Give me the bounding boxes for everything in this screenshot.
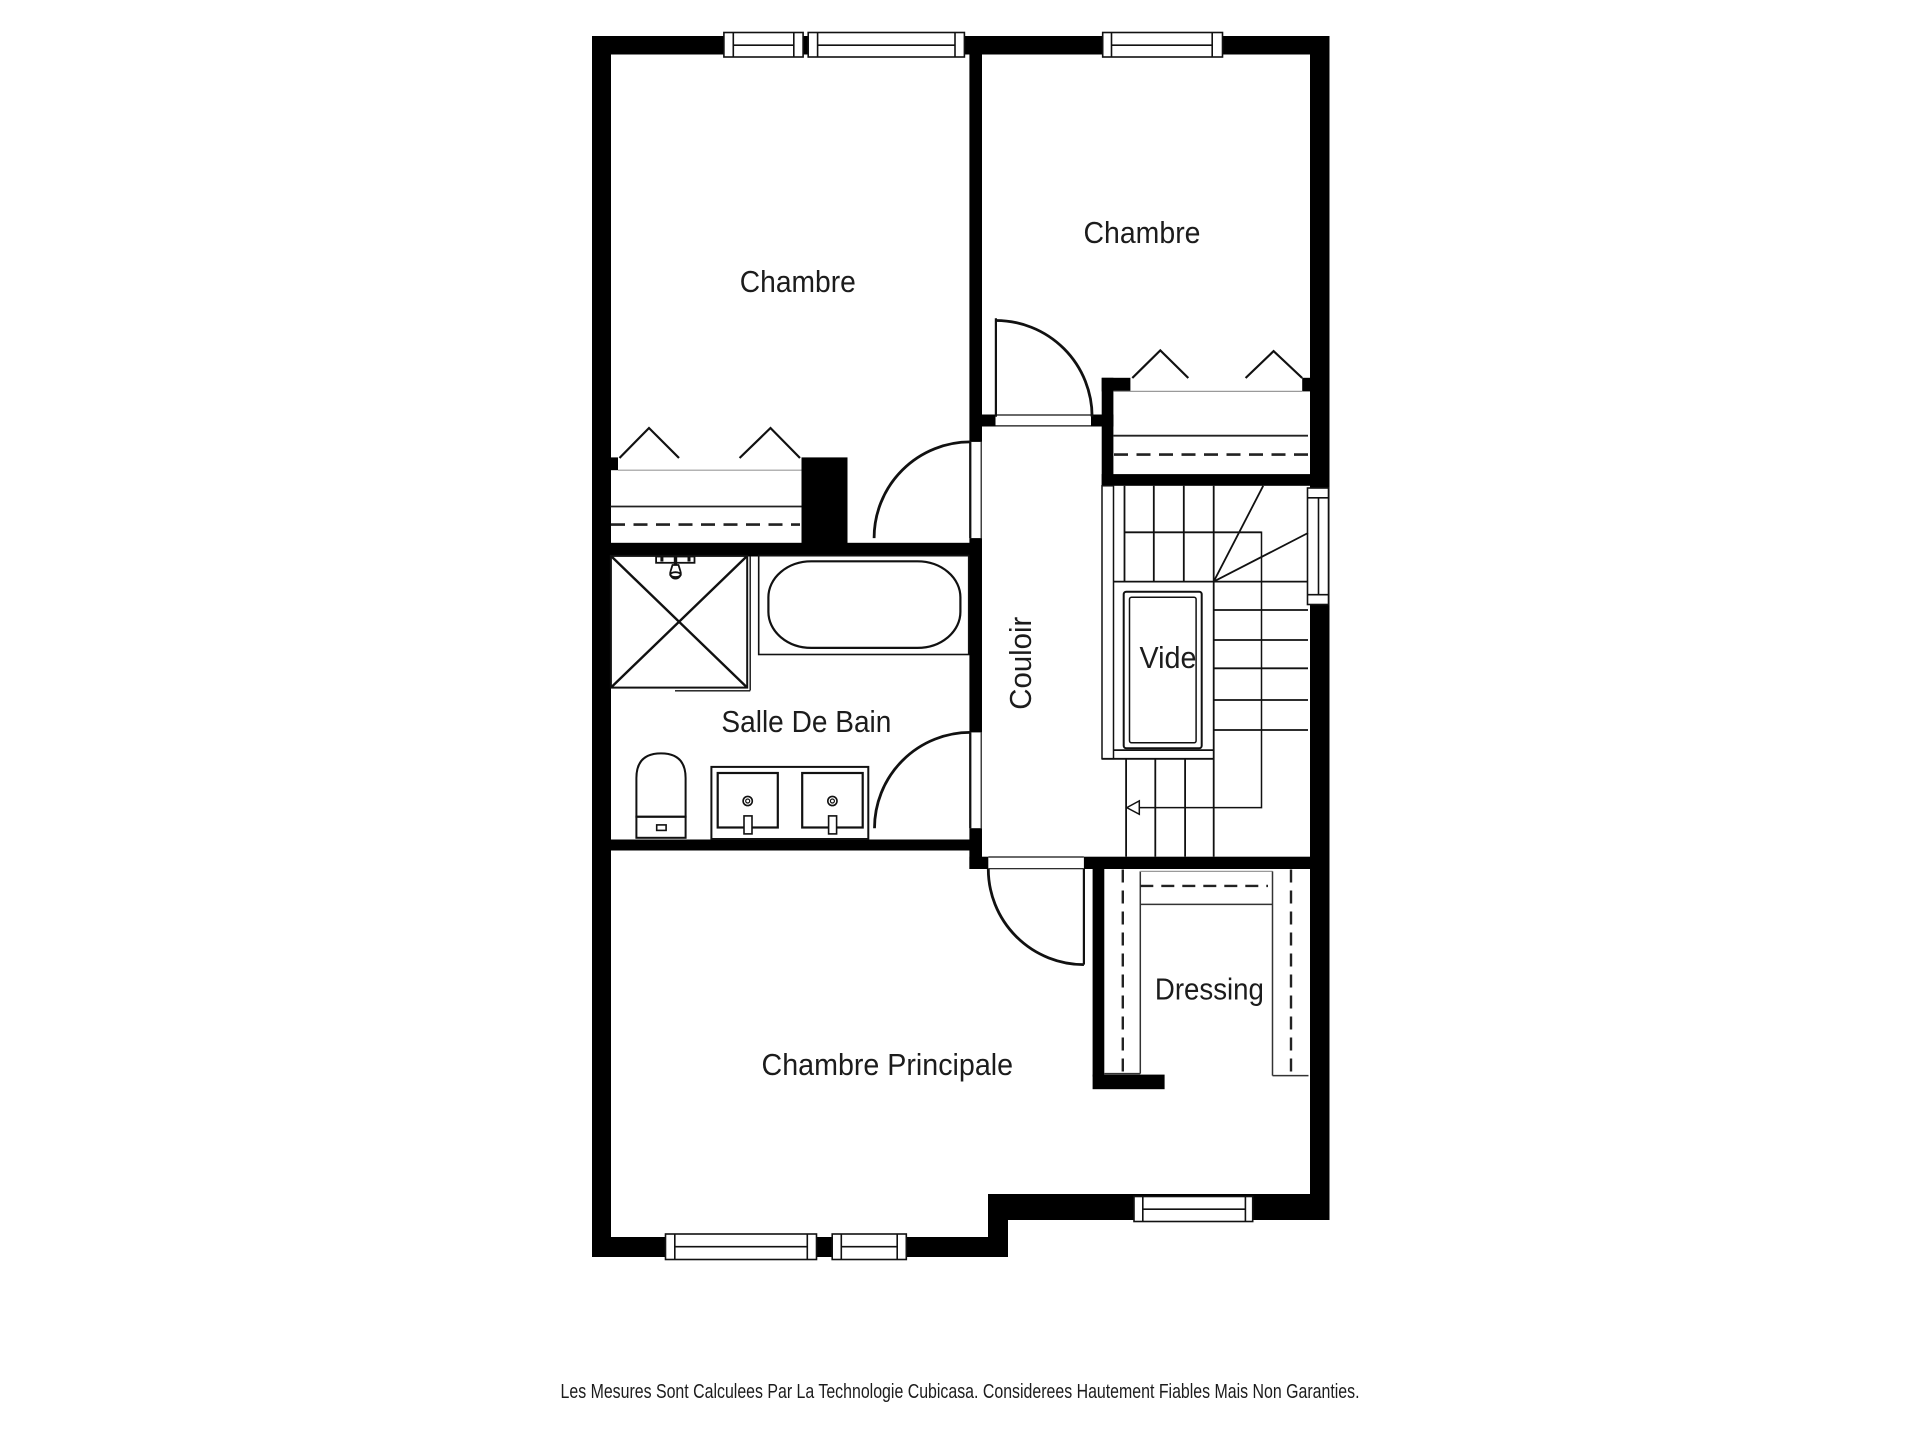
svg-text:Chambre Principale: Chambre Principale <box>762 1047 1014 1082</box>
svg-text:Salle De Bain: Salle De Bain <box>721 704 891 739</box>
svg-text:Couloir: Couloir <box>1003 617 1038 710</box>
svg-text:Dressing: Dressing <box>1155 972 1264 1007</box>
svg-text:Vide: Vide <box>1140 640 1197 675</box>
svg-text:Chambre: Chambre <box>1084 215 1201 250</box>
svg-text:Chambre: Chambre <box>740 264 856 299</box>
svg-text:Les Mesures Sont Calculees Par: Les Mesures Sont Calculees Par La Techno… <box>561 1380 1360 1403</box>
